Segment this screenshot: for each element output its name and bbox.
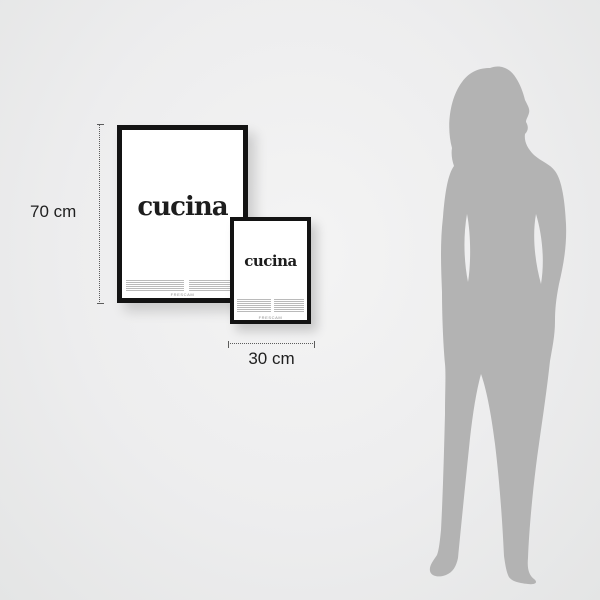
fine-print-block [274, 299, 304, 313]
fine-print-block [126, 280, 184, 291]
height-measure-tick-top [97, 124, 104, 125]
height-measure-line [99, 124, 100, 304]
large-poster-title: cucina [122, 192, 243, 222]
width-measure-label: 30 cm [228, 350, 315, 368]
height-measure-tick-bottom [97, 303, 104, 304]
fine-print-block [237, 299, 271, 313]
size-guide-scene: 70 cm cucina FRESCAM cucina FRESCAM 30 c… [0, 0, 600, 600]
small-poster-title: cucina [234, 252, 307, 270]
small-poster-frame: cucina FRESCAM [230, 217, 311, 324]
width-measure-line [228, 343, 315, 344]
large-poster-brand-label: FRESCAM [122, 293, 243, 297]
width-measure-tick-right [314, 341, 315, 348]
small-poster-brand-label: FRESCAM [234, 316, 307, 320]
large-poster-fine-print [126, 280, 239, 291]
width-measure-tick-left [228, 341, 229, 348]
small-poster-fine-print [237, 299, 304, 313]
human-silhouette-figure [428, 62, 568, 587]
large-poster-frame: cucina FRESCAM [117, 125, 248, 303]
height-measure-label: 70 cm [30, 203, 80, 221]
